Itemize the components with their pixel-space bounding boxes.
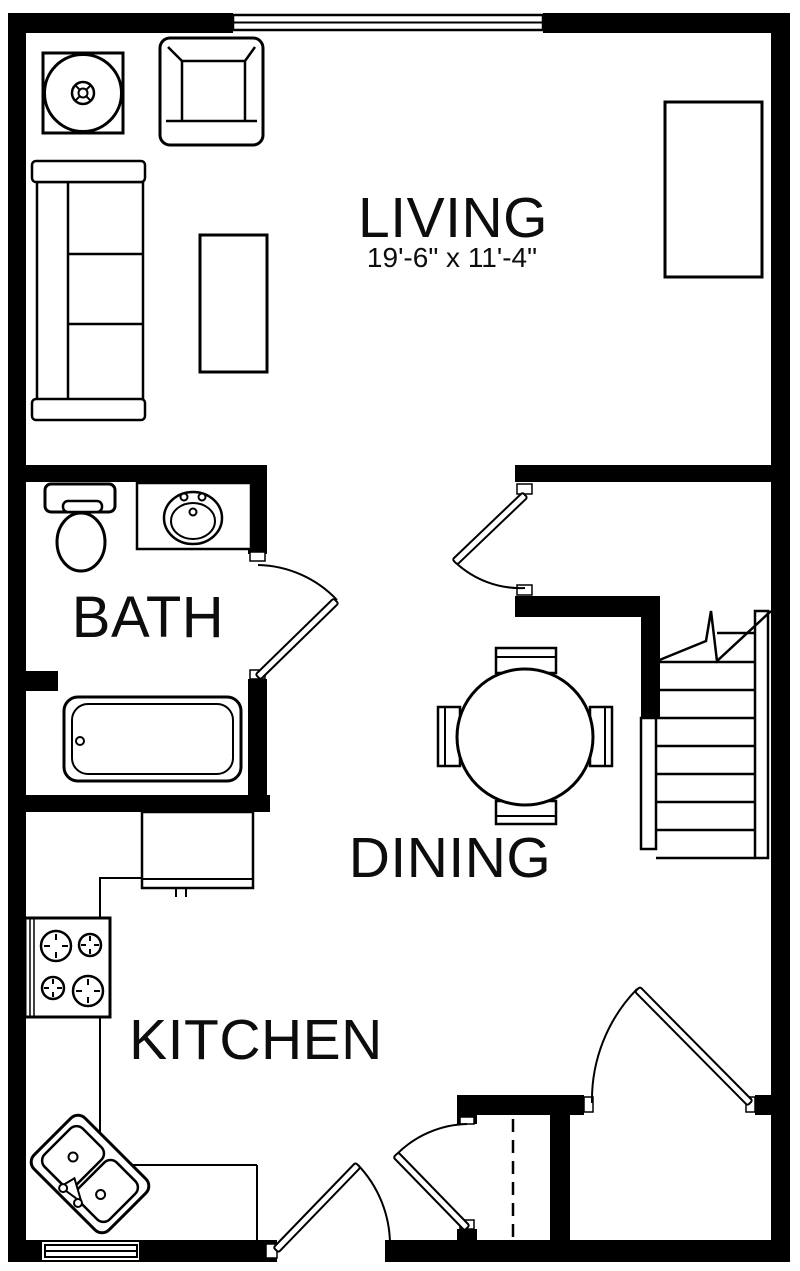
wall-bath-right-lower [248, 679, 267, 797]
wall-right [771, 13, 790, 1262]
staircase [641, 611, 771, 858]
wall-left [8, 13, 26, 1262]
floor-plan: LIVING 19'-6" x 11'-4" BATH DINING KITCH… [0, 0, 800, 1271]
room-label-dining: DINING [349, 830, 552, 887]
stove [25, 918, 110, 1017]
coffee-table [200, 235, 267, 372]
toilet [45, 484, 115, 571]
wall-closet-right [550, 1115, 570, 1242]
window-top [233, 13, 543, 33]
stair-rail-left [641, 718, 656, 849]
wall-stairs-v [641, 596, 660, 718]
room-label-kitchen: KITCHEN [129, 1012, 383, 1069]
wall-tub-stub [26, 671, 58, 691]
tv-cabinet [665, 102, 762, 277]
wall-closet-stub-bottom [457, 1229, 477, 1242]
stair-treads [656, 633, 755, 858]
room-dimensions-living: 19'-6" x 11'-4" [367, 244, 537, 272]
sofa [32, 161, 145, 420]
front-door [273, 1163, 390, 1253]
wall-top-left [8, 13, 233, 33]
stair-stringer-right [755, 611, 768, 858]
wall-hall-right [755, 1095, 771, 1115]
wall-bath-bottom [8, 795, 270, 812]
window-bottom [42, 1242, 139, 1260]
wall-top-right [543, 13, 790, 33]
room-label-bath: BATH [72, 589, 224, 647]
dining-furniture [438, 648, 612, 824]
armchair [160, 38, 263, 145]
wall-dining-stairs-h [515, 596, 660, 617]
entry-door [592, 987, 753, 1106]
room-label-living: LIVING [358, 190, 548, 247]
wall-bottom-right [385, 1240, 790, 1262]
dining-table [457, 669, 593, 805]
round-side-table [43, 53, 123, 133]
wall-hall-left [457, 1095, 584, 1115]
bathtub [64, 697, 241, 781]
wall-bath-top [8, 465, 267, 482]
living-dining-door [452, 492, 527, 588]
closet-door [393, 1124, 469, 1230]
pantry-cabinet [142, 812, 253, 897]
kitchen-corner-sink [27, 1111, 153, 1237]
wall-living-dining [515, 465, 771, 482]
bathroom-sink [137, 483, 251, 549]
bath-door [256, 565, 339, 680]
